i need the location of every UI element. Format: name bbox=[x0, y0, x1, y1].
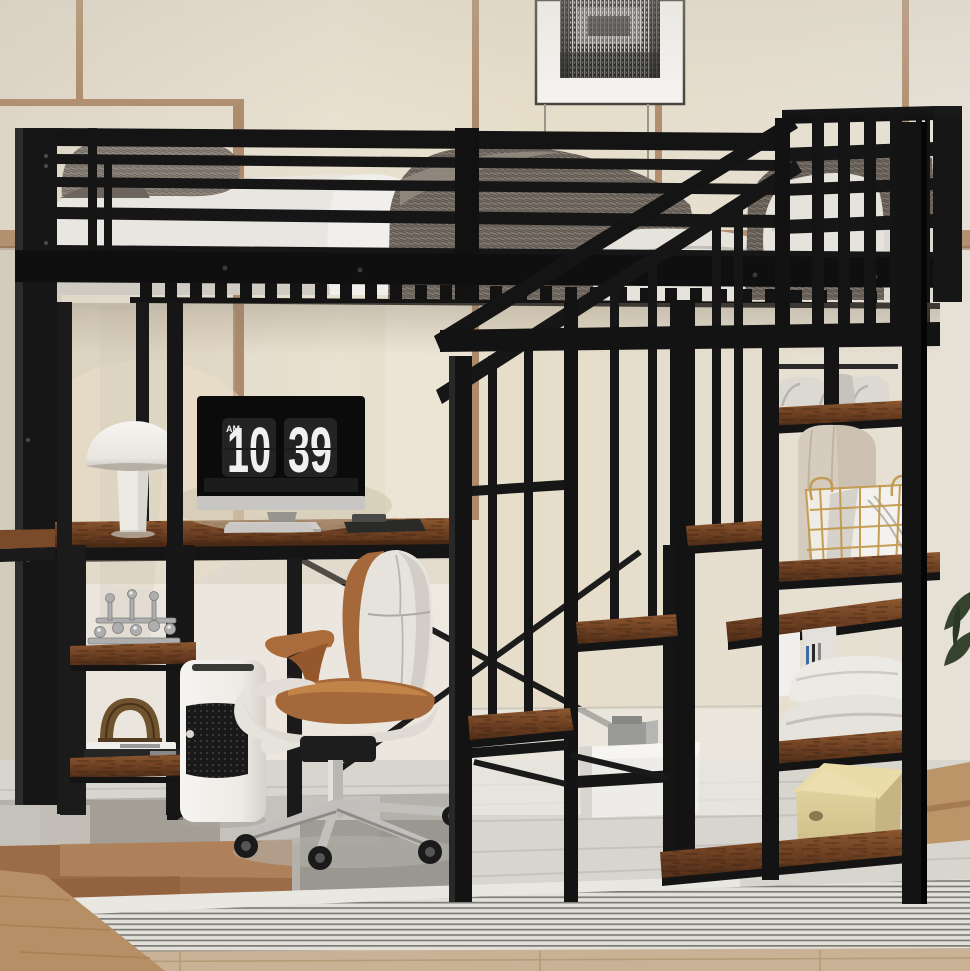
svg-text:AM: AM bbox=[226, 424, 240, 434]
